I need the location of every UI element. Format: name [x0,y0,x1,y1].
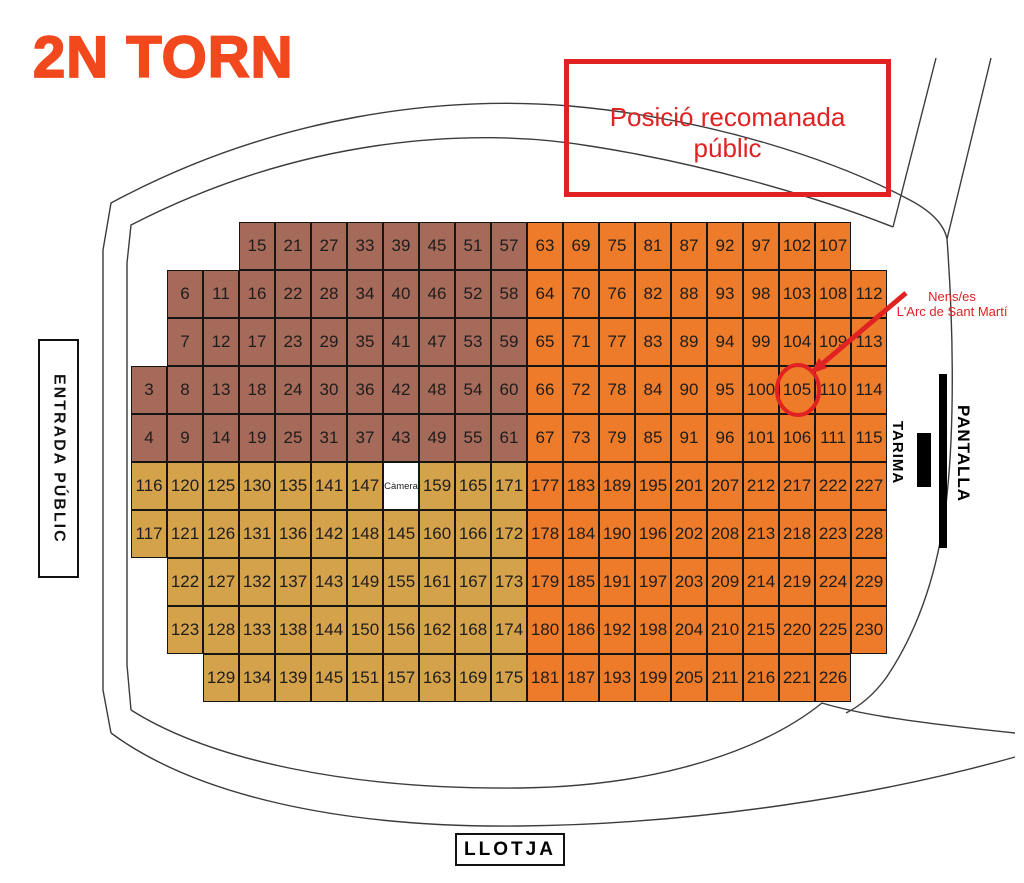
seat-143: 143 [311,558,347,606]
seat-102: 102 [779,222,815,270]
llotja-label: LLOTJA [464,839,556,861]
seat-41: 41 [383,318,419,366]
seat-72: 72 [563,366,599,414]
seat-94: 94 [707,318,743,366]
seat-191: 191 [599,558,635,606]
seat-230: 230 [851,606,887,654]
nens-annotation-line1: Nens/es [880,289,1024,304]
seat-189: 189 [599,462,635,510]
seat-201: 201 [671,462,707,510]
seat-84: 84 [635,366,671,414]
seat-186: 186 [563,606,599,654]
seat-69: 69 [563,222,599,270]
seat-148: 148 [347,510,383,558]
seat-100: 100 [743,366,779,414]
seat-71: 71 [563,318,599,366]
seat-39: 39 [383,222,419,270]
seat-123: 123 [167,606,203,654]
seat-157: 157 [383,654,419,702]
seat-106: 106 [779,414,815,462]
seat-64: 64 [527,270,563,318]
seat-177: 177 [527,462,563,510]
seat-96: 96 [707,414,743,462]
seat-24: 24 [275,366,311,414]
seat-48: 48 [419,366,455,414]
seat-221: 221 [779,654,815,702]
seat-81: 81 [635,222,671,270]
seat-92: 92 [707,222,743,270]
seat-114: 114 [851,366,887,414]
seat-155: 155 [383,558,419,606]
nens-annotation: Nens/es L'Arc de Sant Martí [880,289,1024,319]
seat-51: 51 [455,222,491,270]
seat-167: 167 [455,558,491,606]
seat-160: 160 [419,510,455,558]
seat-181: 181 [527,654,563,702]
recommended-position-text: Posició recomanada públic [610,102,846,163]
seat-136: 136 [275,510,311,558]
seat-131: 131 [239,510,275,558]
seat-138: 138 [275,606,311,654]
seat-59: 59 [491,318,527,366]
seat-117: 117 [131,510,167,558]
seat-139: 139 [275,654,311,702]
seat-115: 115 [851,414,887,462]
seat-163: 163 [419,654,455,702]
seat-11: 11 [203,270,239,318]
seat-16: 16 [239,270,275,318]
seat-3: 3 [131,366,167,414]
seat-187: 187 [563,654,599,702]
seat-103: 103 [779,270,815,318]
seat-34: 34 [347,270,383,318]
seat-25: 25 [275,414,311,462]
seat-122: 122 [167,558,203,606]
seat-190: 190 [599,510,635,558]
seat-204: 204 [671,606,707,654]
seat-147: 147 [347,462,383,510]
seat-166: 166 [455,510,491,558]
seat-111: 111 [815,414,851,462]
seat-213: 213 [743,510,779,558]
seat-192: 192 [599,606,635,654]
seat-151: 151 [347,654,383,702]
seat-133: 133 [239,606,275,654]
seat-55: 55 [455,414,491,462]
nens-annotation-line2: L'Arc de Sant Martí [880,304,1024,319]
seat-165: 165 [455,462,491,510]
seat-127: 127 [203,558,239,606]
seat-120: 120 [167,462,203,510]
seat-196: 196 [635,510,671,558]
seat-135: 135 [275,462,311,510]
seat-66: 66 [527,366,563,414]
seat-23: 23 [275,318,311,366]
seat-40: 40 [383,270,419,318]
seat-218: 218 [779,510,815,558]
camera-cell: Càmera [383,462,419,510]
seat-179: 179 [527,558,563,606]
seat-222: 222 [815,462,851,510]
seat-88: 88 [671,270,707,318]
seat-215: 215 [743,606,779,654]
seat-129: 129 [203,654,239,702]
seat-37: 37 [347,414,383,462]
seat-98: 98 [743,270,779,318]
seat-116: 116 [131,462,167,510]
seat-27: 27 [311,222,347,270]
seat-174: 174 [491,606,527,654]
seat-227: 227 [851,462,887,510]
seat-19: 19 [239,414,275,462]
seat-9: 9 [167,414,203,462]
seat-211: 211 [707,654,743,702]
seat-168: 168 [455,606,491,654]
seat-137: 137 [275,558,311,606]
seat-173: 173 [491,558,527,606]
seat-149: 149 [347,558,383,606]
seat-183: 183 [563,462,599,510]
seat-87: 87 [671,222,707,270]
seat-110: 110 [815,366,851,414]
seat-12: 12 [203,318,239,366]
seat-6: 6 [167,270,203,318]
seat-197: 197 [635,558,671,606]
seat-142: 142 [311,510,347,558]
seat-134: 134 [239,654,275,702]
seat-216: 216 [743,654,779,702]
seat-132: 132 [239,558,275,606]
seat-205: 205 [671,654,707,702]
seat-49: 49 [419,414,455,462]
seat-214: 214 [743,558,779,606]
seat-101: 101 [743,414,779,462]
tarima-label: TARIMA [889,421,906,484]
seat-193: 193 [599,654,635,702]
seat-162: 162 [419,606,455,654]
seat-58: 58 [491,270,527,318]
seat-91: 91 [671,414,707,462]
seating-plan-page: 2N TORN 15212733394551576369758187929710… [0,0,1024,883]
seat-109: 109 [815,318,851,366]
recommended-position-box: Posició recomanada públic [564,59,891,197]
seat-105: 105 [779,366,815,414]
seat-54: 54 [455,366,491,414]
seat-8: 8 [167,366,203,414]
seat-63: 63 [527,222,563,270]
seat-73: 73 [563,414,599,462]
seat-21: 21 [275,222,311,270]
seat-60: 60 [491,366,527,414]
seat-75: 75 [599,222,635,270]
seat-224: 224 [815,558,851,606]
seat-159: 159 [419,462,455,510]
seat-145: 145 [311,654,347,702]
seat-229: 229 [851,558,887,606]
seat-150: 150 [347,606,383,654]
seat-121: 121 [167,510,203,558]
seat-223: 223 [815,510,851,558]
seat-161: 161 [419,558,455,606]
seat-178: 178 [527,510,563,558]
seat-207: 207 [707,462,743,510]
seat-13: 13 [203,366,239,414]
seat-226: 226 [815,654,851,702]
seat-199: 199 [635,654,671,702]
seat-99: 99 [743,318,779,366]
seat-184: 184 [563,510,599,558]
seat-175: 175 [491,654,527,702]
seat-52: 52 [455,270,491,318]
seat-29: 29 [311,318,347,366]
seat-57: 57 [491,222,527,270]
seat-141: 141 [311,462,347,510]
seat-28: 28 [311,270,347,318]
seat-22: 22 [275,270,311,318]
seat-89: 89 [671,318,707,366]
llotja-label-box: LLOTJA [455,833,565,866]
seat-145: 145 [383,510,419,558]
seat-208: 208 [707,510,743,558]
seat-53: 53 [455,318,491,366]
seat-210: 210 [707,606,743,654]
seat-171: 171 [491,462,527,510]
seat-212: 212 [743,462,779,510]
seat-180: 180 [527,606,563,654]
seat-65: 65 [527,318,563,366]
seat-126: 126 [203,510,239,558]
seat-70: 70 [563,270,599,318]
seat-97: 97 [743,222,779,270]
seat-156: 156 [383,606,419,654]
seat-104: 104 [779,318,815,366]
seat-4: 4 [131,414,167,462]
seat-144: 144 [311,606,347,654]
seat-169: 169 [455,654,491,702]
seat-36: 36 [347,366,383,414]
seat-83: 83 [635,318,671,366]
seat-82: 82 [635,270,671,318]
seat-15: 15 [239,222,275,270]
seat-17: 17 [239,318,275,366]
seat-217: 217 [779,462,815,510]
seat-14: 14 [203,414,239,462]
seat-31: 31 [311,414,347,462]
seat-76: 76 [599,270,635,318]
seat-125: 125 [203,462,239,510]
pantalla-label: PANTALLA [953,405,973,502]
seat-47: 47 [419,318,455,366]
seat-185: 185 [563,558,599,606]
seat-77: 77 [599,318,635,366]
entrance-label: ENTRADA PÚBLIC [50,374,68,544]
seat-79: 79 [599,414,635,462]
seat-90: 90 [671,366,707,414]
seat-18: 18 [239,366,275,414]
entrance-label-box: ENTRADA PÚBLIC [38,339,79,578]
seat-203: 203 [671,558,707,606]
seat-107: 107 [815,222,851,270]
seat-128: 128 [203,606,239,654]
seat-108: 108 [815,270,851,318]
seat-225: 225 [815,606,851,654]
seat-35: 35 [347,318,383,366]
seat-30: 30 [311,366,347,414]
seat-209: 209 [707,558,743,606]
seat-130: 130 [239,462,275,510]
seat-42: 42 [383,366,419,414]
seat-33: 33 [347,222,383,270]
seat-46: 46 [419,270,455,318]
seat-202: 202 [671,510,707,558]
seat-95: 95 [707,366,743,414]
seat-228: 228 [851,510,887,558]
seat-93: 93 [707,270,743,318]
seat-45: 45 [419,222,455,270]
seat-67: 67 [527,414,563,462]
seat-78: 78 [599,366,635,414]
seat-172: 172 [491,510,527,558]
seat-85: 85 [635,414,671,462]
seat-61: 61 [491,414,527,462]
seat-195: 195 [635,462,671,510]
seat-220: 220 [779,606,815,654]
seat-7: 7 [167,318,203,366]
seat-219: 219 [779,558,815,606]
seat-113: 113 [851,318,887,366]
seat-198: 198 [635,606,671,654]
seat-43: 43 [383,414,419,462]
